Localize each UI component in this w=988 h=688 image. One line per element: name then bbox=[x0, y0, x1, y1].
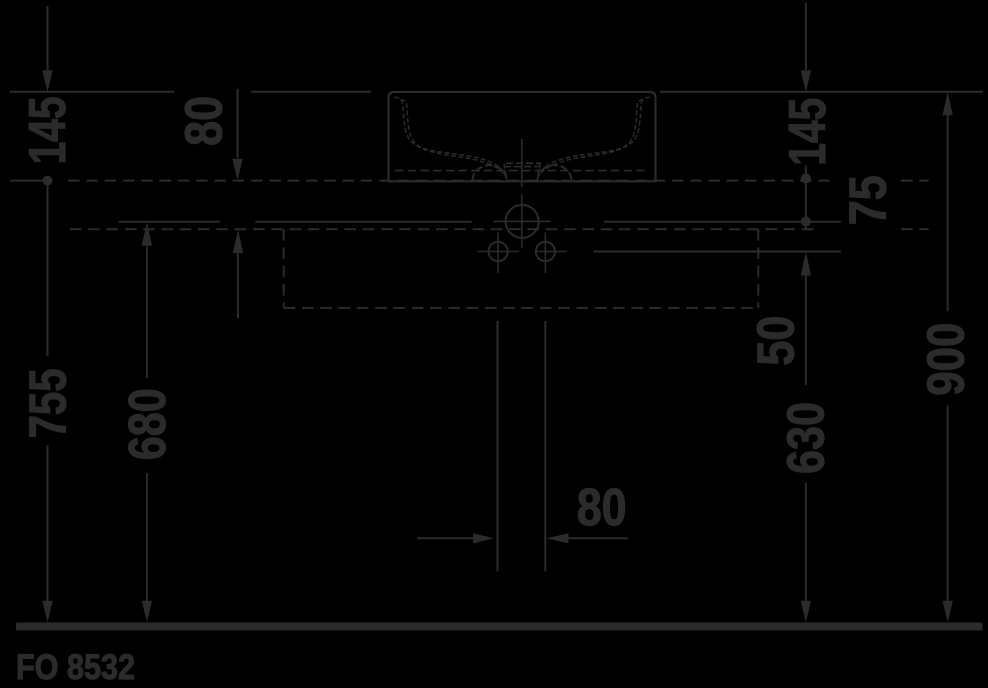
svg-text:145: 145 bbox=[779, 98, 837, 166]
svg-text:680: 680 bbox=[119, 388, 177, 460]
svg-text:80: 80 bbox=[175, 96, 233, 146]
svg-text:145: 145 bbox=[19, 96, 77, 164]
svg-text:80: 80 bbox=[577, 479, 627, 537]
svg-text:755: 755 bbox=[20, 368, 78, 438]
svg-text:630: 630 bbox=[777, 402, 835, 474]
svg-text:75: 75 bbox=[839, 175, 897, 225]
svg-text:900: 900 bbox=[918, 323, 976, 396]
svg-text:FO 8532: FO 8532 bbox=[16, 647, 135, 687]
svg-text:50: 50 bbox=[748, 316, 806, 366]
